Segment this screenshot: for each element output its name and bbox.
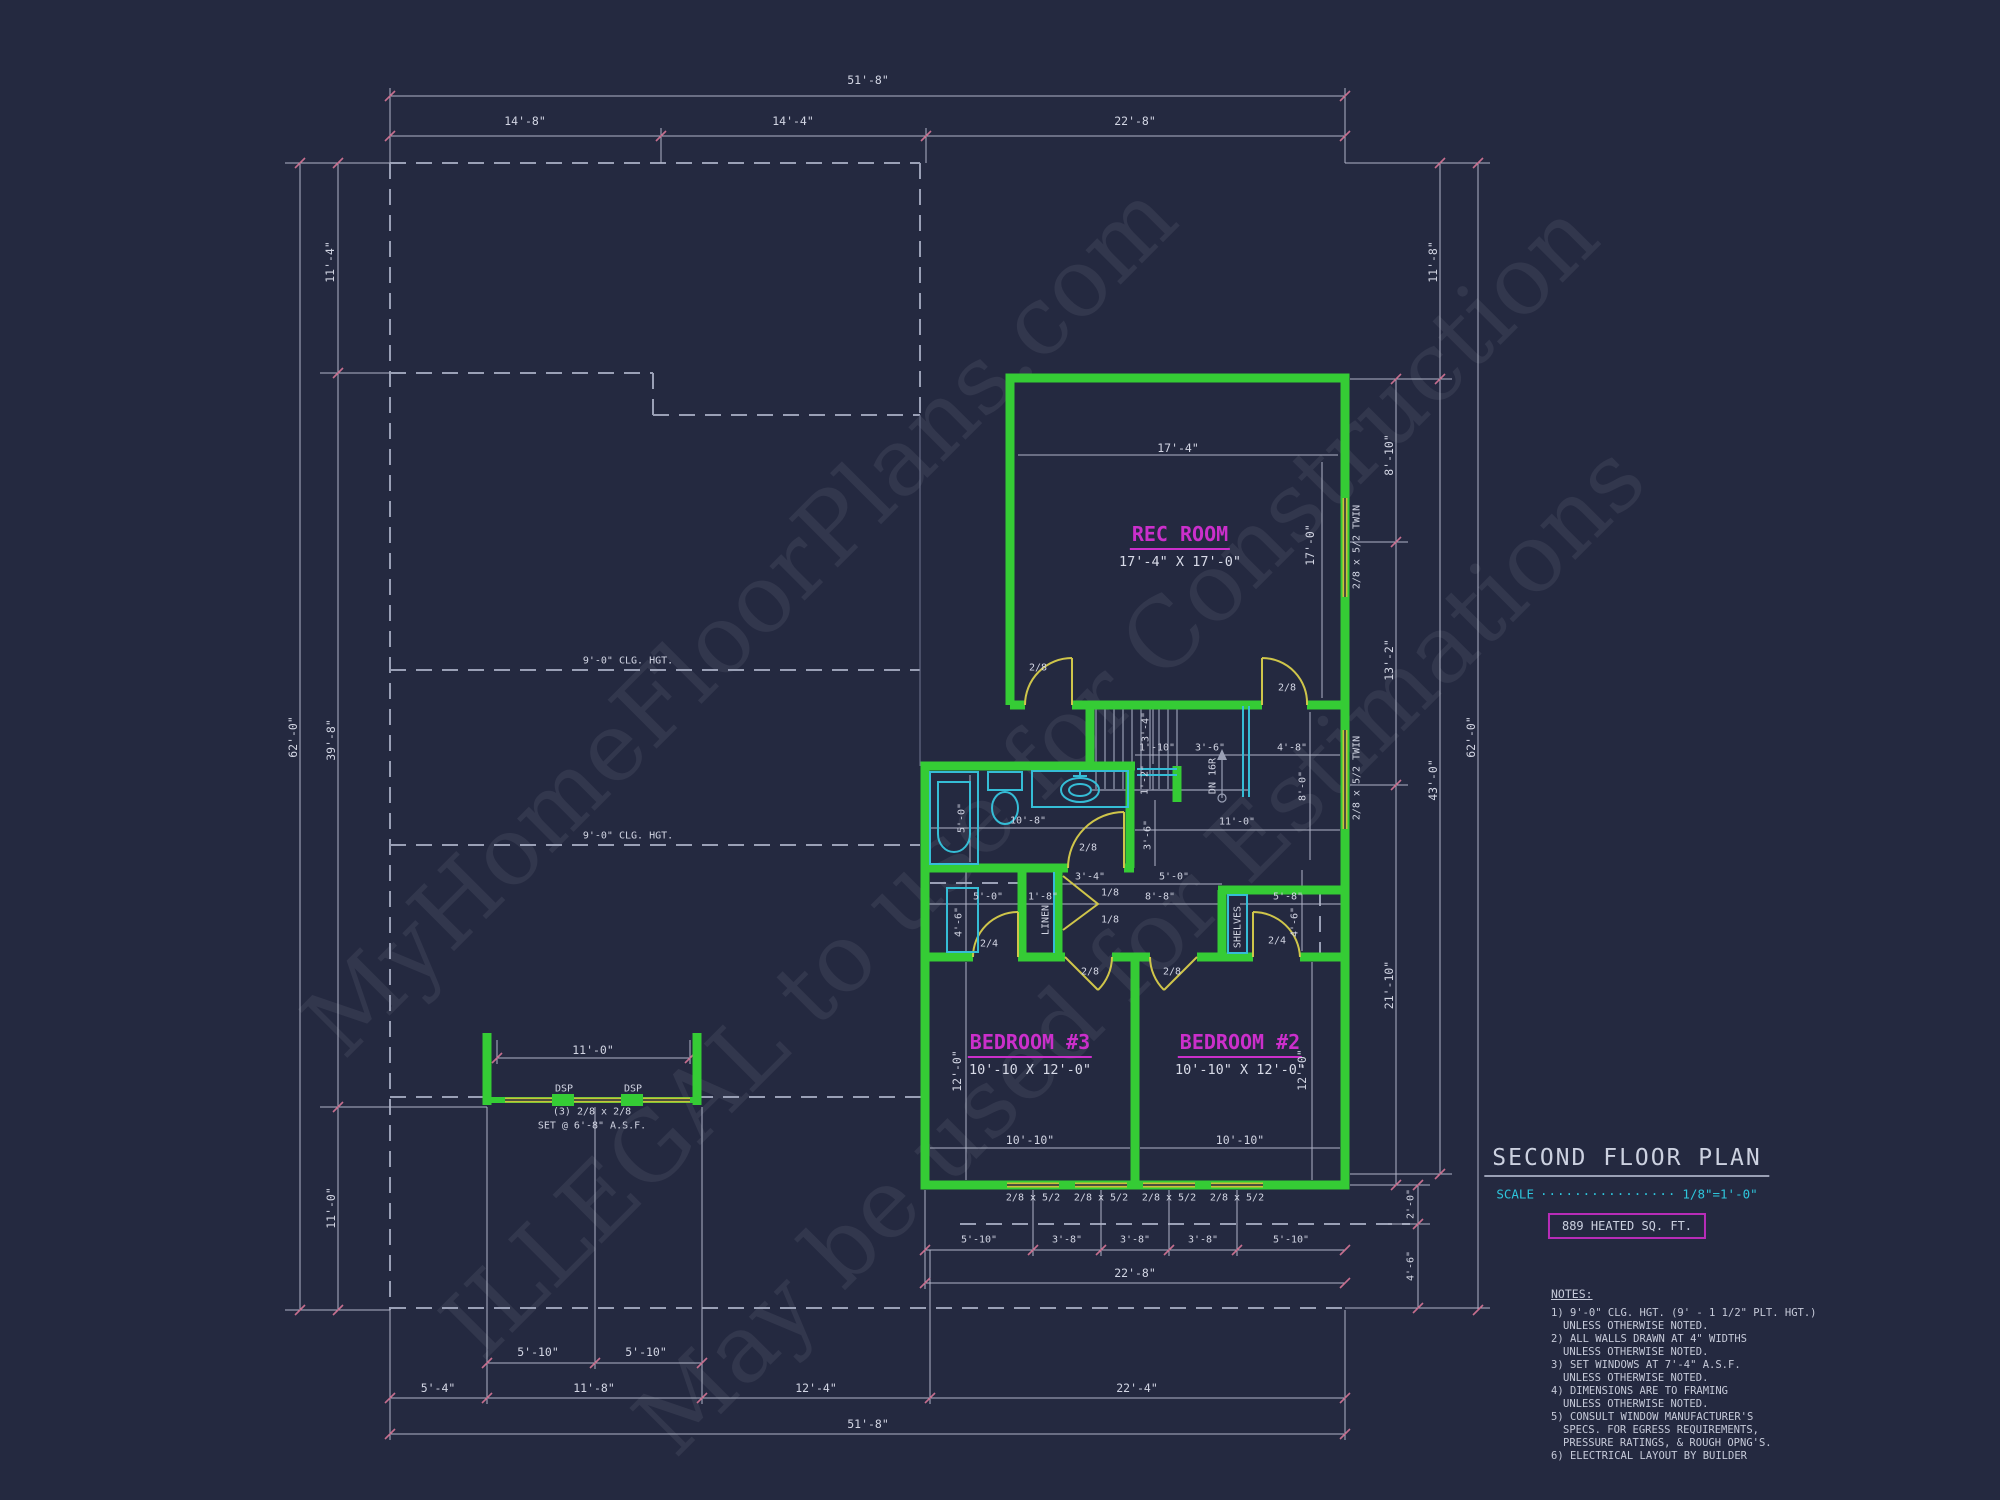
- dim-bed3-height: 12'-0": [950, 1050, 964, 1092]
- scale-leader-dots: ················: [1540, 1187, 1676, 1202]
- dim-right-0: 11'-8": [1426, 241, 1440, 283]
- door-label-rec-right: 2/8: [1278, 683, 1296, 694]
- room-size-bedroom3: 10'-10 X 12'-0": [969, 1062, 1091, 1078]
- note-line: 2) ALL WALLS DRAWN AT 4" WIDTHS: [1551, 1333, 1817, 1346]
- dim-hall-3: 4'-6": [954, 907, 965, 937]
- sink-basin-icon: [1069, 784, 1091, 796]
- window-label-twin-0: 2/8 x 5/2 TWIN: [1352, 505, 1363, 589]
- note-line: UNLESS OTHERWISE NOTED.: [1551, 1398, 1817, 1411]
- ceiling-note-0: 9'-0" CLG. HGT.: [583, 656, 673, 667]
- room-size-bedroom2: 10'-10" X 12'-0": [1175, 1062, 1305, 1078]
- dim-right-3: 43'-0": [1426, 759, 1440, 801]
- linen-label: LINEN: [1041, 905, 1052, 935]
- dim-left-3: 11'-0": [324, 1187, 338, 1229]
- scale-row: SCALE················1/8"=1'-0": [1496, 1187, 1757, 1202]
- note-line: PRESSURE RATINGS, & ROUGH OPNG'S.: [1551, 1437, 1817, 1450]
- note-line: 6) ELECTRICAL LAYOUT BY BUILDER: [1551, 1450, 1817, 1463]
- dim-bottom-1: 11'-8": [573, 1381, 615, 1395]
- dim-hall-0: 5'-0": [973, 892, 1003, 903]
- note-line: 1) 9'-0" CLG. HGT. (9' - 1 1/2" PLT. HGT…: [1551, 1307, 1817, 1320]
- room-label-bedroom3: BEDROOM #3: [968, 1030, 1092, 1058]
- dim-bottom-total: 51'-8": [847, 1417, 889, 1431]
- scale-label: SCALE: [1496, 1187, 1534, 1202]
- dim-top-1: 14'-4": [772, 114, 814, 128]
- dimension-lines: [285, 88, 1490, 1440]
- dim-stair-1: 1'-10": [1139, 743, 1175, 754]
- dim-bottom-pair-1: 5'-10": [625, 1345, 667, 1359]
- dim-stair-4: 1'-2": [1140, 765, 1151, 795]
- toilet-tank-icon: [988, 772, 1022, 790]
- notes-heading: NOTES:: [1551, 1288, 1817, 1301]
- dim-bottom-0: 5'-4": [421, 1381, 456, 1395]
- dim-left-0: 11'-4": [323, 241, 337, 283]
- dim-bath-1: 10'-8": [1010, 816, 1046, 827]
- shelves-label: SHELVES: [1233, 906, 1244, 948]
- notes-block: NOTES: 1) 9'-0" CLG. HGT. (9' - 1 1/2" P…: [1551, 1288, 1817, 1463]
- scale-value: 1/8"=1'-0": [1682, 1187, 1757, 1202]
- dim-bottom-3: 22'-4": [1116, 1381, 1158, 1395]
- door-label-bed3: 2/8: [1081, 967, 1099, 978]
- dim-rec-height: 17'-0": [1303, 524, 1317, 566]
- balcony-set-label: SET @ 6'-8" A.S.F.: [538, 1121, 646, 1132]
- balcony-window-label: (3) 2/8 x 2/8: [553, 1107, 631, 1118]
- dim-win-total: 22'-8": [1114, 1266, 1156, 1280]
- window-label-1: 2/8 x 5/2: [1074, 1193, 1128, 1204]
- room-size-rec-room: 17'-4" X 17'-0": [1119, 554, 1241, 570]
- room-label-rec-room: REC ROOM: [1130, 522, 1230, 550]
- note-line: 4) DIMENSIONS ARE TO FRAMING: [1551, 1385, 1817, 1398]
- floor-plan-drawing: [0, 0, 2000, 1500]
- ceiling-note-1: 9'-0" CLG. HGT.: [583, 831, 673, 842]
- dim-right-6: 2'-0": [1406, 1189, 1417, 1219]
- dim-balcony: 11'-0": [572, 1043, 614, 1057]
- dim-winrow-2: 3'-8": [1120, 1235, 1150, 1246]
- room-label-bedroom2: BEDROOM #2: [1178, 1030, 1302, 1058]
- dim-stair-9: 5'-0": [1159, 872, 1189, 883]
- note-line: UNLESS OTHERWISE NOTED.: [1551, 1346, 1817, 1359]
- dim-stair-2: 3'-6": [1195, 743, 1225, 754]
- dim-stair-3: 4'-8": [1277, 743, 1307, 754]
- window-label-twin-1: 2/8 x 5/2 TWIN: [1352, 736, 1363, 820]
- deck-post-label-0: DSP: [555, 1084, 573, 1095]
- dim-bed2-width: 10'-10": [1216, 1133, 1264, 1147]
- dim-winrow-3: 3'-8": [1188, 1235, 1218, 1246]
- dim-winrow-4: 5'-10": [1273, 1235, 1309, 1246]
- note-line: 3) SET WINDOWS AT 7'-4" A.S.F.: [1551, 1359, 1817, 1372]
- window-label-2: 2/8 x 5/2: [1142, 1193, 1196, 1204]
- door-label-bifold-1: 1/8: [1101, 915, 1119, 926]
- dim-bed3-width: 10'-10": [1006, 1133, 1054, 1147]
- dim-stair-8: 3'-4": [1075, 872, 1105, 883]
- dim-winrow-0: 5'-10": [961, 1235, 997, 1246]
- door-label-closet2: 2/4: [1268, 936, 1286, 947]
- dim-hall-5: 4'-6": [1290, 907, 1301, 937]
- dim-rec-width: 17'-4": [1157, 441, 1199, 455]
- dim-right-2: 13'-2": [1382, 639, 1396, 681]
- door-label-bifold-0: 1/8: [1101, 888, 1119, 899]
- dim-stair-5: 8'-0": [1298, 771, 1309, 801]
- dim-right-4: 62'-0": [1464, 716, 1478, 758]
- dim-right-7: 4'-6": [1406, 1251, 1417, 1281]
- dim-top-0: 14'-8": [504, 114, 546, 128]
- dim-stair-6: 11'-0": [1219, 817, 1255, 828]
- door-label-rec-left: 2/8: [1029, 663, 1047, 674]
- dim-winrow-1: 3'-8": [1052, 1235, 1082, 1246]
- page-title: SECOND FLOOR PLAN: [1484, 1145, 1769, 1177]
- note-line: SPECS. FOR EGRESS REQUIREMENTS,: [1551, 1424, 1817, 1437]
- dim-stair-7: 3'-6": [1143, 820, 1154, 850]
- dim-hall-1: 1'-8": [1028, 892, 1058, 903]
- window-label-3: 2/8 x 5/2: [1210, 1193, 1264, 1204]
- dim-top-2: 22'-8": [1114, 114, 1156, 128]
- dim-hall-4: 5'-8": [1273, 892, 1303, 903]
- dim-bed2-height: 12'-0": [1295, 1049, 1309, 1091]
- dim-bottom-2: 12'-4": [795, 1381, 837, 1395]
- heated-area-badge: 889 HEATED SQ. FT.: [1548, 1213, 1706, 1239]
- dim-hall-2: 8'-8": [1145, 892, 1175, 903]
- stairs-dn-label: DN 16R: [1208, 758, 1219, 794]
- dim-top-total: 51'-8": [847, 73, 889, 87]
- dim-stair-0: 3'-4": [1141, 712, 1152, 742]
- door-label-bed2: 2/8: [1163, 967, 1181, 978]
- dim-left-2: 39'-8": [324, 719, 338, 761]
- stairs: [1090, 706, 1250, 802]
- note-line: 5) CONSULT WINDOW MANUFACTURER'S: [1551, 1411, 1817, 1424]
- deck-post-label-1: DSP: [624, 1084, 642, 1095]
- dim-left-1: 62'-0": [286, 716, 300, 758]
- window-label-0: 2/8 x 5/2: [1006, 1193, 1060, 1204]
- dim-bath-0: 5'-0": [957, 803, 968, 833]
- floor-plan-sheet: MyHomeFloorPlans.com ILLEGAL to use for …: [0, 0, 2000, 1500]
- door-label-closet3: 2/4: [980, 939, 998, 950]
- dim-right-1: 8'-10": [1382, 434, 1396, 476]
- dim-right-5: 21'-10": [1382, 961, 1396, 1009]
- dim-bottom-pair-0: 5'-10": [517, 1345, 559, 1359]
- note-line: UNLESS OTHERWISE NOTED.: [1551, 1372, 1817, 1385]
- note-line: UNLESS OTHERWISE NOTED.: [1551, 1320, 1817, 1333]
- door-label-bath: 2/8: [1079, 843, 1097, 854]
